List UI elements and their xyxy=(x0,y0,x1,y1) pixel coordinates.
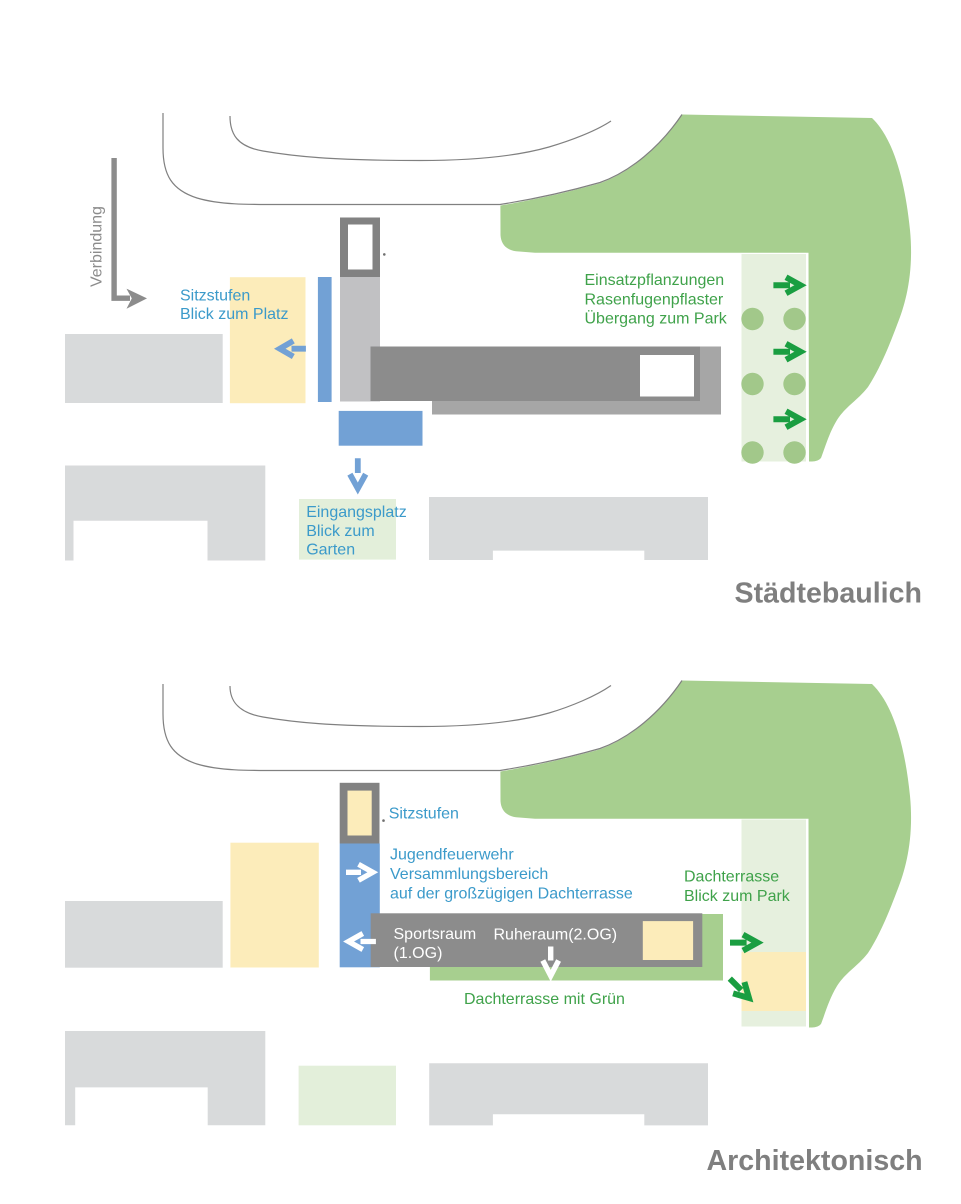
svg-text:(1.OG): (1.OG) xyxy=(394,945,443,962)
svg-text:Sitzstufen: Sitzstufen xyxy=(389,805,459,822)
svg-text:Dachterrasse mit Grün: Dachterrasse mit Grün xyxy=(464,991,625,1008)
svg-text:Städtebaulich: Städtebaulich xyxy=(735,578,922,610)
svg-text:Verbindung: Verbindung xyxy=(89,206,106,287)
svg-text:Eingangsplatz: Eingangsplatz xyxy=(306,504,407,521)
svg-text:Architektonisch: Architektonisch xyxy=(707,1145,923,1177)
svg-text:Blick zum Platz: Blick zum Platz xyxy=(180,306,288,323)
svg-text:Übergang zum Park: Übergang zum Park xyxy=(585,309,728,327)
svg-text:Versammlungsbereich: Versammlungsbereich xyxy=(390,866,548,883)
svg-text:Rasenfugenpflaster: Rasenfugenpflaster xyxy=(585,291,724,308)
svg-text:Ruheraum(2.OG): Ruheraum(2.OG) xyxy=(494,926,618,943)
svg-text:Garten: Garten xyxy=(306,542,355,559)
svg-text:auf der großzügigen Dachterras: auf der großzügigen Dachterrasse xyxy=(390,885,633,902)
svg-text:Einsatzpflanzungen: Einsatzpflanzungen xyxy=(585,272,725,289)
svg-text:Dachterrasse: Dachterrasse xyxy=(684,869,779,886)
svg-text:Jugendfeuerwehr: Jugendfeuerwehr xyxy=(390,847,514,864)
svg-text:Sportsraum: Sportsraum xyxy=(394,926,477,943)
svg-text:Sitzstufen: Sitzstufen xyxy=(180,288,250,305)
svg-text:Blick zum Park: Blick zum Park xyxy=(684,888,791,905)
svg-text:Blick zum: Blick zum xyxy=(306,523,374,540)
